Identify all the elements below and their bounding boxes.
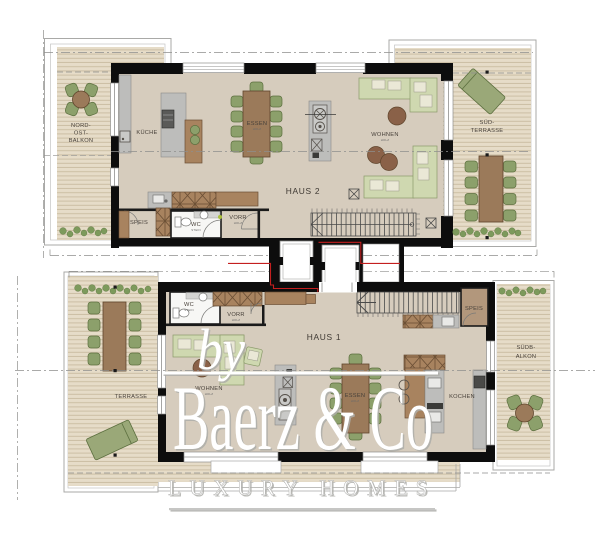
svg-text:HAUS 2: HAUS 2 (286, 186, 320, 196)
svg-text:LUXURY HOMES: LUXURY HOMES (168, 475, 436, 500)
svg-text:KÜCHE: KÜCHE (136, 129, 157, 136)
svg-text:KOCHEN: KOCHEN (449, 394, 475, 400)
svg-text:HOLZ: HOLZ (253, 127, 262, 131)
svg-text:BALKON: BALKON (69, 138, 94, 144)
svg-text:SPEIS: SPEIS (130, 220, 148, 226)
svg-text:HAUS 1: HAUS 1 (307, 332, 341, 342)
svg-text:TERRASSE: TERRASSE (471, 128, 504, 134)
svg-text:SÜD-: SÜD- (480, 119, 495, 126)
svg-text:SPEIS: SPEIS (465, 306, 483, 312)
svg-text:HOLZ: HOLZ (234, 221, 243, 225)
svg-text:ALKON: ALKON (516, 354, 537, 360)
svg-text:HOLZ: HOLZ (381, 138, 390, 142)
svg-text:STEIN: STEIN (191, 228, 201, 232)
svg-text:SÜDB-: SÜDB- (517, 344, 536, 351)
svg-text:NORD-: NORD- (71, 123, 91, 129)
svg-text:OST-: OST- (74, 131, 88, 137)
svg-text:STEIN: STEIN (184, 308, 194, 312)
svg-text:Baerz & Co: Baerz & Co (173, 367, 433, 469)
svg-text:TERRASSE: TERRASSE (115, 394, 148, 400)
